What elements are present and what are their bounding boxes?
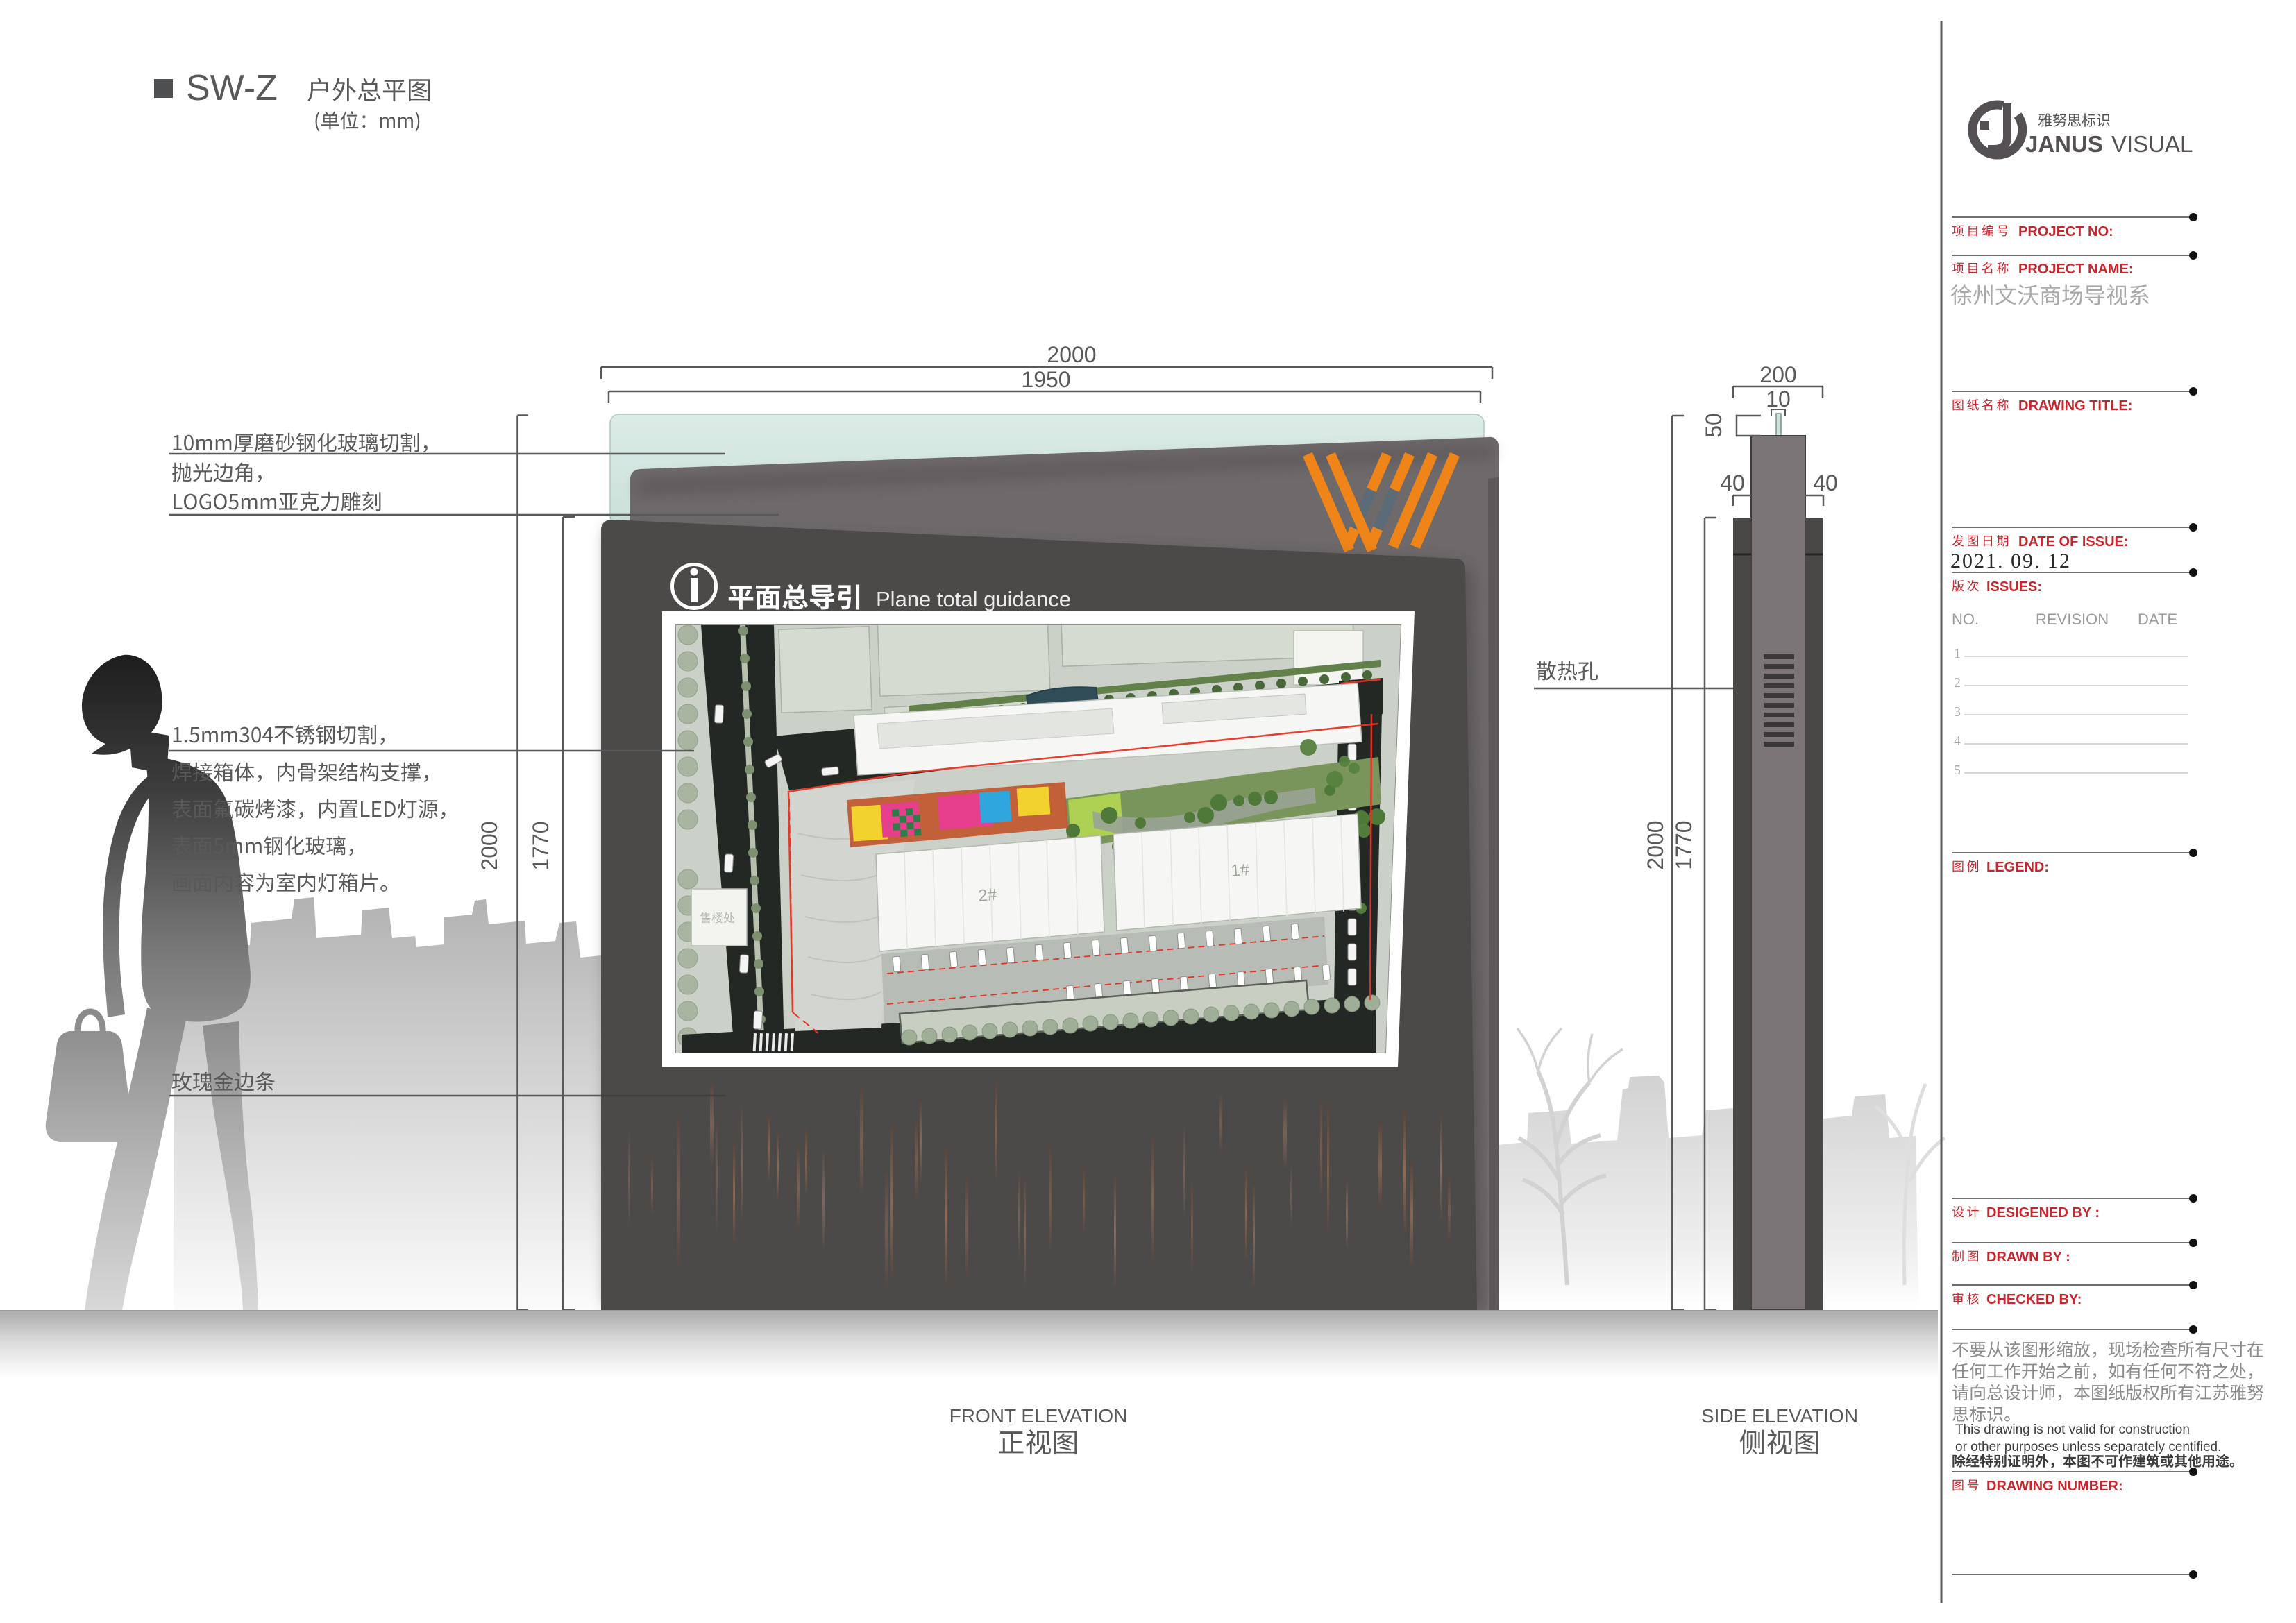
svg-text:50: 50 (1701, 413, 1726, 438)
svg-text:CHECKED BY:: CHECKED BY: (1986, 1292, 2082, 1307)
svg-text:1770: 1770 (528, 821, 553, 870)
svg-text:PROJECT NO:: PROJECT NO: (2018, 224, 2113, 239)
svg-text:ISSUES:: ISSUES: (1986, 579, 2042, 595)
svg-text:LEGEND:: LEGEND: (1986, 860, 2049, 875)
svg-text:DATE OF ISSUE:: DATE OF ISSUE: (2018, 534, 2129, 550)
svg-text:2000: 2000 (477, 821, 502, 870)
svg-text:JANUS: JANUS (2025, 131, 2103, 157)
svg-text:REVISION: REVISION (2036, 611, 2109, 628)
svg-text:4: 4 (1954, 733, 1961, 749)
svg-text:1: 1 (1954, 646, 1961, 661)
svg-text:DRAWN BY :: DRAWN BY : (1986, 1250, 2070, 1265)
svg-text:This drawing is not valid for: This drawing is not valid for constructi… (1955, 1422, 2190, 1437)
svg-text:Plane total guidance: Plane total guidance (876, 587, 1071, 611)
svg-text:2: 2 (1954, 675, 1961, 690)
svg-text:DATE: DATE (2138, 611, 2177, 628)
svg-text:2#: 2# (977, 885, 997, 906)
svg-text:1#: 1# (1230, 860, 1250, 881)
svg-text:5: 5 (1954, 763, 1961, 778)
svg-text:3: 3 (1954, 704, 1961, 720)
svg-text:VISUAL: VISUAL (2111, 131, 2193, 157)
svg-text:2000: 2000 (1643, 820, 1668, 869)
svg-text:FRONT ELEVATION: FRONT ELEVATION (949, 1405, 1128, 1427)
svg-text:NO.: NO. (1952, 611, 1979, 628)
svg-text:DESIGENED BY :: DESIGENED BY : (1986, 1205, 2100, 1221)
svg-text:PROJECT NAME:: PROJECT NAME: (2018, 262, 2134, 277)
svg-text:1950: 1950 (1021, 367, 1070, 392)
svg-text:1770: 1770 (1671, 820, 1696, 869)
svg-text:2000: 2000 (1047, 342, 1096, 367)
svg-text:DRAWING TITLE:: DRAWING TITLE: (2018, 398, 2132, 414)
svg-text:SW-Z: SW-Z (186, 68, 278, 108)
svg-text:200: 200 (1759, 362, 1796, 387)
svg-text:40: 40 (1720, 470, 1745, 495)
svg-text:2021. 09. 12: 2021. 09. 12 (1950, 550, 2071, 572)
svg-text:or other purposes unless separ: or other purposes unless separately cent… (1955, 1440, 2221, 1454)
svg-text:10: 10 (1766, 386, 1791, 411)
svg-text:SIDE ELEVATION: SIDE ELEVATION (1701, 1405, 1858, 1427)
svg-text:DRAWING NUMBER:: DRAWING NUMBER: (1986, 1479, 2123, 1494)
svg-text:40: 40 (1813, 470, 1838, 495)
